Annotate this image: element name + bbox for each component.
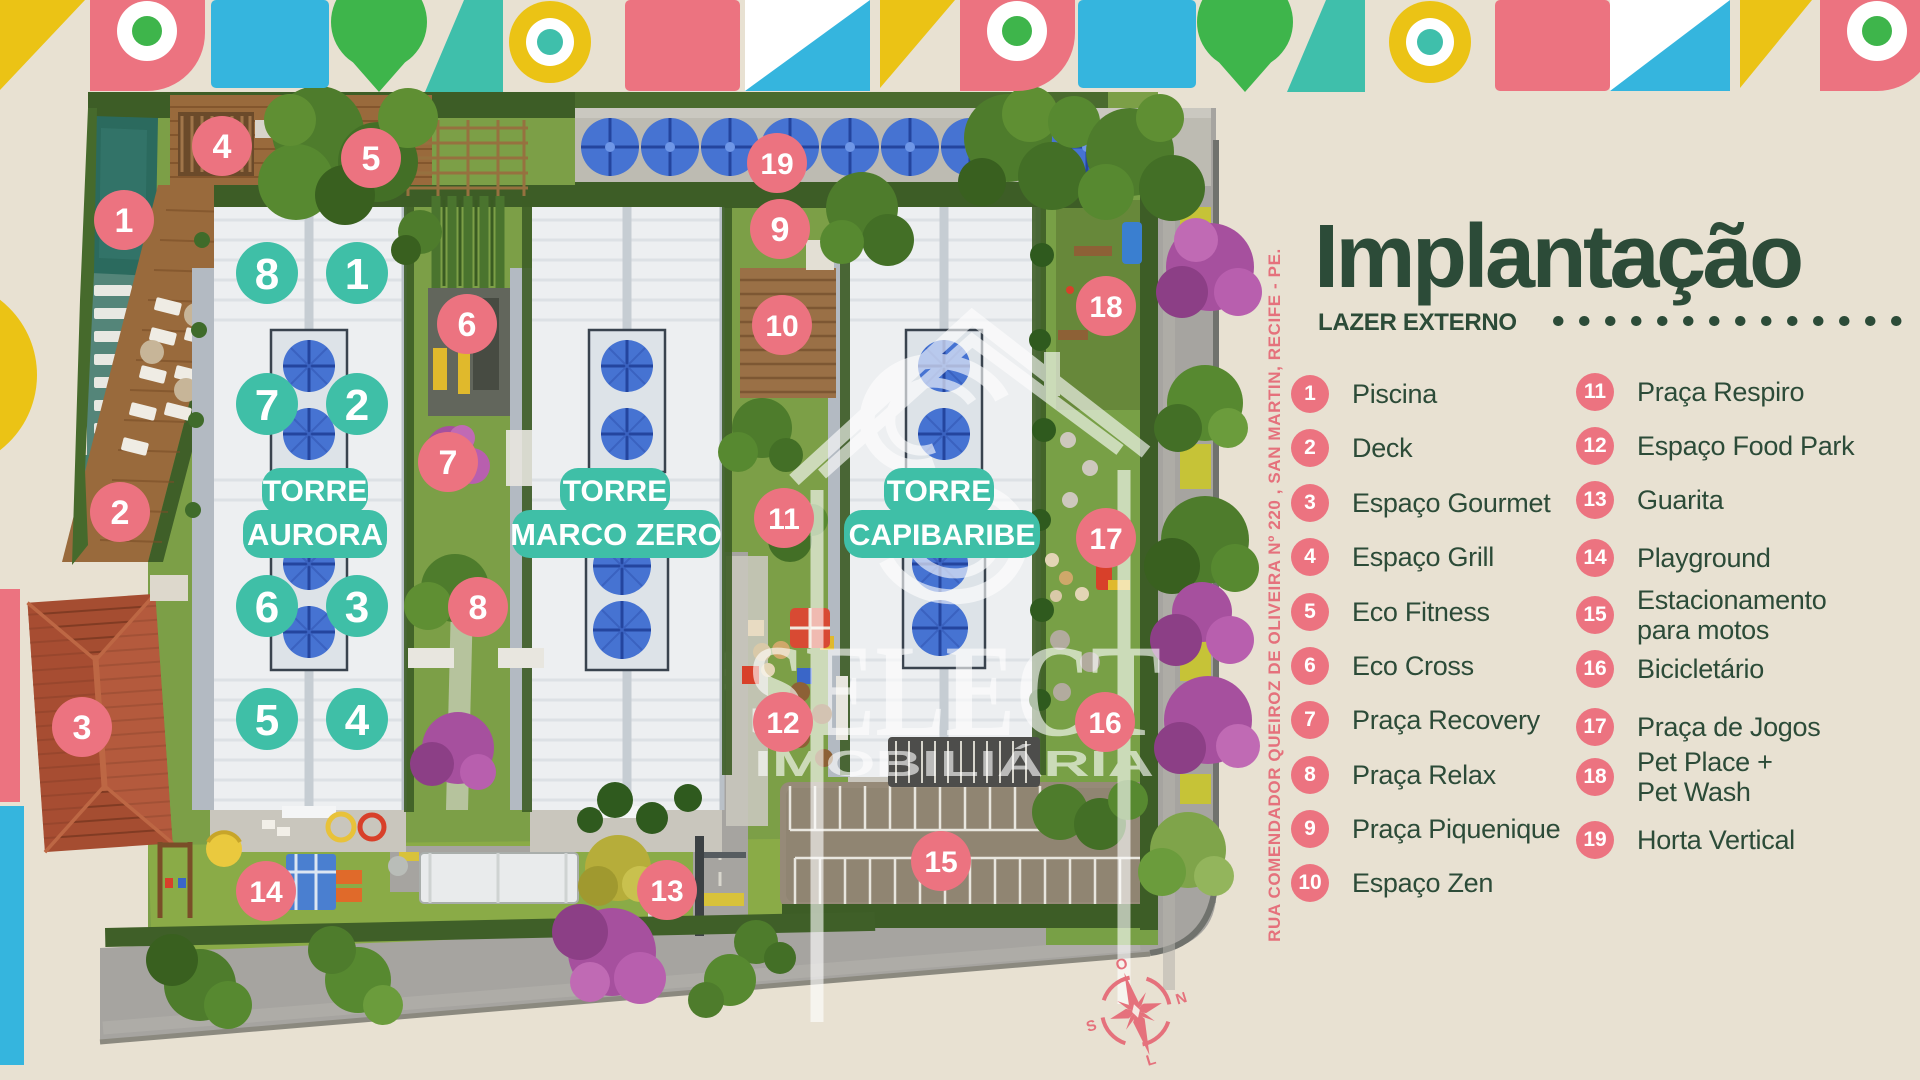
svg-text:15: 15 bbox=[924, 846, 957, 879]
svg-text:TORRE: TORRE bbox=[563, 475, 667, 508]
svg-text:1: 1 bbox=[345, 250, 369, 299]
svg-text:1: 1 bbox=[115, 202, 134, 240]
svg-text:8: 8 bbox=[255, 250, 279, 299]
svg-text:12: 12 bbox=[766, 707, 799, 740]
svg-text:7: 7 bbox=[439, 444, 458, 482]
svg-text:2: 2 bbox=[345, 381, 369, 430]
svg-text:6: 6 bbox=[458, 306, 477, 344]
svg-text:2: 2 bbox=[111, 494, 130, 532]
svg-text:17: 17 bbox=[1089, 523, 1122, 556]
svg-text:5: 5 bbox=[362, 140, 381, 178]
svg-text:9: 9 bbox=[771, 211, 790, 249]
svg-text:4: 4 bbox=[213, 128, 232, 166]
svg-text:4: 4 bbox=[345, 696, 370, 745]
svg-text:10: 10 bbox=[765, 310, 798, 343]
svg-text:3: 3 bbox=[345, 583, 369, 632]
svg-text:13: 13 bbox=[650, 875, 683, 908]
svg-text:11: 11 bbox=[768, 503, 800, 536]
svg-text:CAPIBARIBE: CAPIBARIBE bbox=[849, 519, 1036, 552]
svg-text:16: 16 bbox=[1088, 707, 1121, 740]
svg-text:14: 14 bbox=[249, 876, 283, 909]
svg-text:3: 3 bbox=[73, 709, 92, 747]
svg-text:8: 8 bbox=[469, 589, 488, 627]
svg-text:6: 6 bbox=[255, 583, 279, 632]
svg-text:19: 19 bbox=[760, 148, 793, 181]
svg-text:18: 18 bbox=[1089, 291, 1122, 324]
svg-text:7: 7 bbox=[255, 381, 279, 430]
svg-text:TORRE: TORRE bbox=[263, 475, 367, 508]
svg-text:AURORA: AURORA bbox=[247, 517, 383, 552]
svg-text:5: 5 bbox=[255, 696, 279, 745]
svg-text:MARCO ZERO: MARCO ZERO bbox=[510, 517, 722, 552]
svg-text:TORRE: TORRE bbox=[887, 475, 991, 508]
